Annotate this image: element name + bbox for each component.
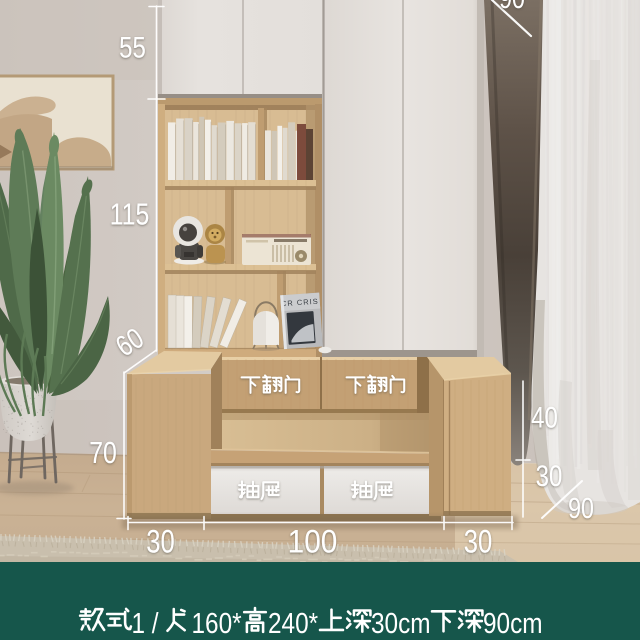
- svg-text:160*: 160*: [192, 607, 242, 639]
- svg-text:30: 30: [146, 525, 174, 560]
- svg-text:115: 115: [110, 197, 150, 231]
- svg-text:90cm: 90cm: [483, 607, 543, 639]
- svg-text:55: 55: [119, 30, 146, 64]
- svg-text:30: 30: [536, 458, 563, 492]
- svg-text:100: 100: [288, 524, 338, 560]
- svg-text:1 /: 1 /: [132, 607, 166, 639]
- svg-text:40: 40: [531, 400, 558, 434]
- svg-text:90: 90: [499, 0, 525, 15]
- svg-text:240*: 240*: [268, 607, 318, 639]
- svg-text:30: 30: [464, 525, 492, 560]
- svg-text:90: 90: [568, 491, 594, 524]
- svg-text:70: 70: [89, 435, 117, 469]
- svg-text:30cm: 30cm: [371, 607, 431, 639]
